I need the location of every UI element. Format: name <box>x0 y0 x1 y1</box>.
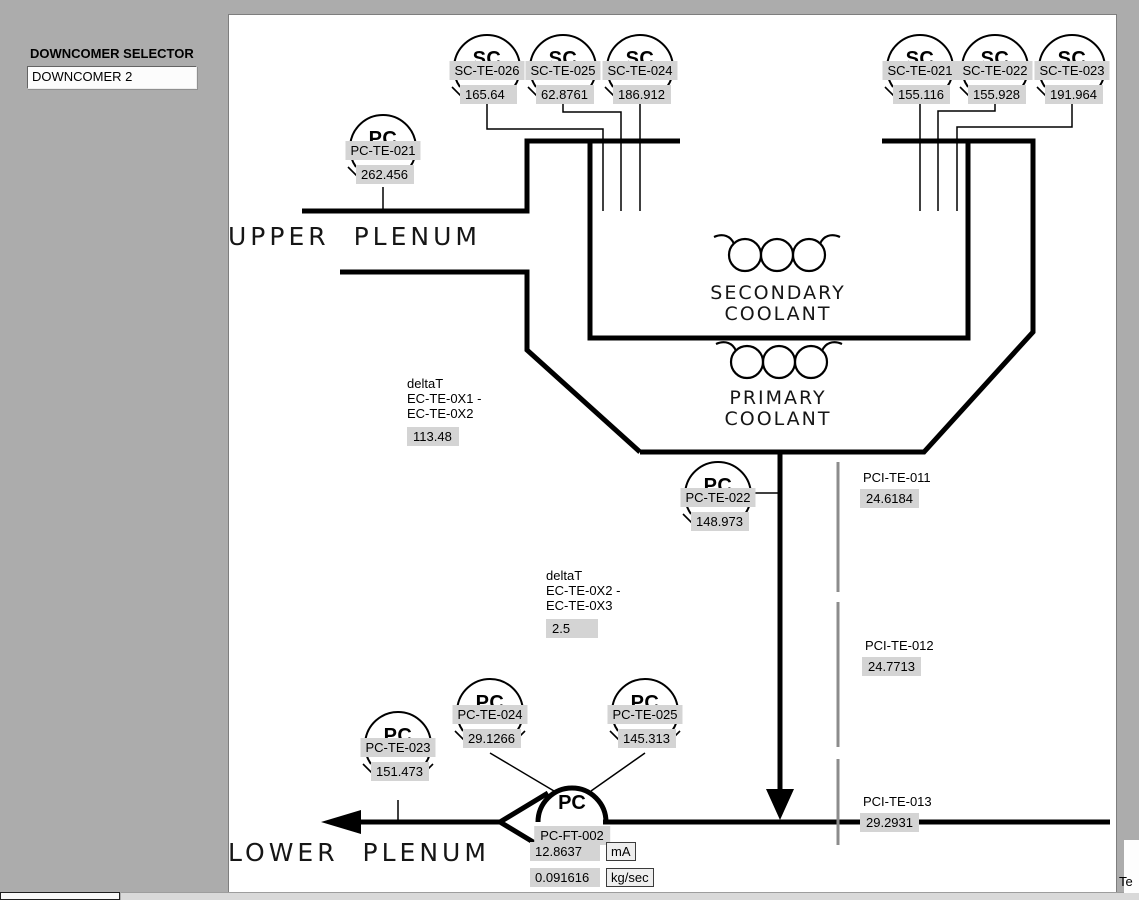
delta-t-title: deltaT <box>407 376 481 391</box>
sensor-pc-te-025: PC PC-TE-025 145.313 <box>590 679 700 753</box>
sensor-value-indicator: 148.973 <box>691 512 749 531</box>
sensor-value-indicator: 151.473 <box>371 762 429 781</box>
pci-tag: PCI-TE-013 <box>863 794 932 809</box>
flow-transmitter-pc-ft-002: PC PC-FT-002 12.8637 mA 0.091616 kg/sec <box>492 790 662 890</box>
delta-t-value-indicator: 2.5 <box>546 619 598 638</box>
pci-value-indicator: 24.7713 <box>862 657 921 676</box>
delta-t-line2: EC-TE-0X3 <box>546 598 620 613</box>
delta-t-line1: EC-TE-0X2 - <box>546 583 620 598</box>
delta-t-block-1: deltaT EC-TE-0X1 - EC-TE-0X2 113.48 <box>407 376 481 446</box>
secondary-coolant-line2: COOLANT <box>668 304 888 325</box>
sensor-tag: PC-TE-022 <box>680 488 755 507</box>
corner-clipped-text: Te <box>1119 874 1133 889</box>
pci-tag: PCI-TE-012 <box>865 638 934 653</box>
flow-rate-indicator: 0.091616 <box>530 868 600 887</box>
pci-te-011: PCI-TE-011 24.6184 <box>860 470 931 508</box>
delta-t-line1: EC-TE-0X1 - <box>407 391 481 406</box>
downcomer-selector-input[interactable]: DOWNCOMER 2 <box>27 66 197 89</box>
upper-plenum-label: UPPER PLENUM <box>228 222 481 251</box>
secondary-coolant-label: SECONDARY COOLANT <box>668 283 888 325</box>
pci-te-012: PCI-TE-012 24.7713 <box>862 638 934 676</box>
delta-t-block-2: deltaT EC-TE-0X2 - EC-TE-0X3 2.5 <box>546 568 620 638</box>
sensor-value-indicator: 145.313 <box>618 729 676 748</box>
secondary-coolant-line1: SECONDARY <box>668 283 888 304</box>
primary-coolant-line1: PRIMARY <box>668 388 888 409</box>
sensor-tag: SC-TE-024 <box>602 61 677 80</box>
sensor-tag: SC-TE-023 <box>1034 61 1109 80</box>
sensor-tag: PC-TE-024 <box>452 705 527 724</box>
delta-t-line2: EC-TE-0X2 <box>407 406 481 421</box>
sensor-value-indicator: 191.964 <box>1045 85 1103 104</box>
lower-plenum-label: LOWER PLENUM <box>228 838 490 867</box>
sensor-pc-te-021: PC PC-TE-021 262.456 <box>328 115 438 189</box>
sensor-value-indicator: 186.912 <box>613 85 671 104</box>
pci-value-indicator: 29.2931 <box>860 813 919 832</box>
primary-coolant-label: PRIMARY COOLANT <box>668 388 888 430</box>
flow-current-unit: mA <box>606 842 636 861</box>
delta-t-value-indicator: 113.48 <box>407 427 459 446</box>
primary-coolant-line2: COOLANT <box>668 409 888 430</box>
labview-front-panel: { "selector": { "label": "DOWNCOMER SELE… <box>0 0 1139 900</box>
flow-rate-unit: kg/sec <box>606 868 654 887</box>
pci-tag: PCI-TE-011 <box>863 470 931 485</box>
sensor-tag: PC-TE-025 <box>607 705 682 724</box>
sensor-tag: PC-TE-023 <box>360 738 435 757</box>
bottom-edge-window-fragment <box>0 892 120 900</box>
pci-value-indicator: 24.6184 <box>860 489 919 508</box>
pci-te-013: PCI-TE-013 29.2931 <box>860 794 932 832</box>
sensor-sc-te-024: SC SC-TE-024 186.912 <box>585 35 695 109</box>
sensor-kind: PC <box>492 792 652 815</box>
sensor-value-indicator: 262.456 <box>356 165 414 184</box>
sensor-value-indicator: 29.1266 <box>463 729 521 748</box>
sensor-sc-te-023: SC SC-TE-023 191.964 <box>1017 35 1127 109</box>
sensor-pc-te-023: PC PC-TE-023 151.473 <box>343 712 453 786</box>
sensor-pc-te-022: PC PC-TE-022 148.973 <box>663 462 773 536</box>
downcomer-selector-label: DOWNCOMER SELECTOR <box>30 46 194 61</box>
flow-current-indicator: 12.8637 <box>530 842 600 861</box>
sensor-tag: PC-TE-021 <box>345 141 420 160</box>
delta-t-title: deltaT <box>546 568 620 583</box>
bottom-edge-strip <box>121 892 1139 900</box>
